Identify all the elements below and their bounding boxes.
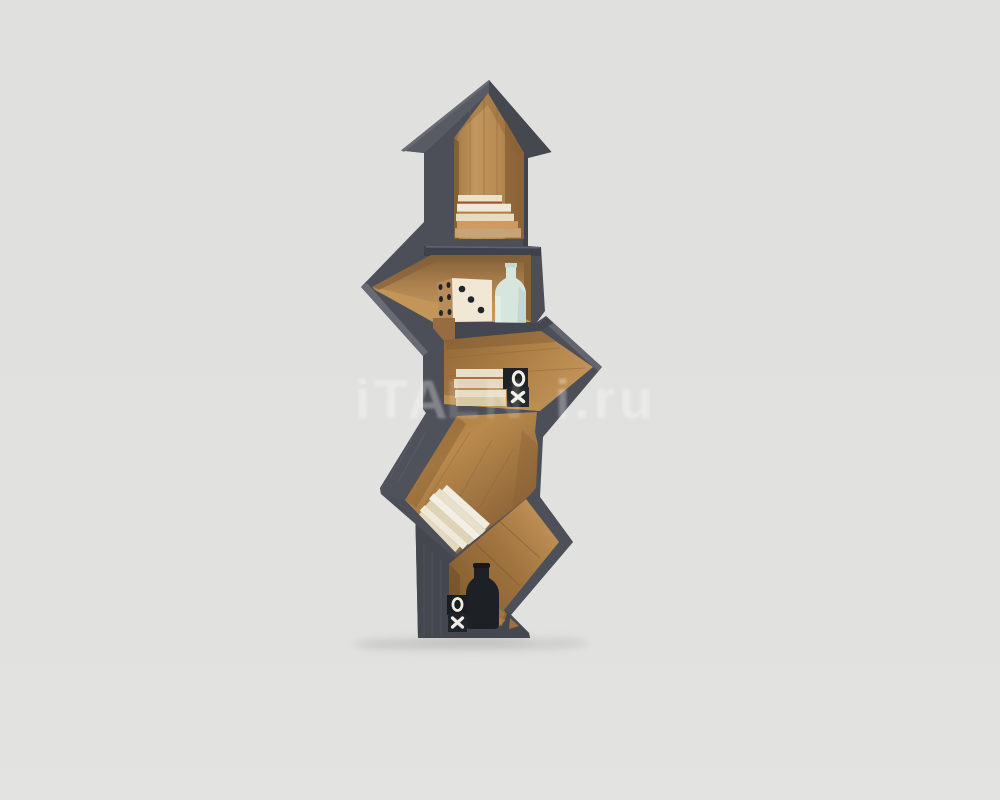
- svg-text:i.ru: i.ru: [555, 368, 657, 430]
- svg-text:iTA: iTA: [355, 368, 452, 430]
- svg-text:LN: LN: [446, 368, 527, 430]
